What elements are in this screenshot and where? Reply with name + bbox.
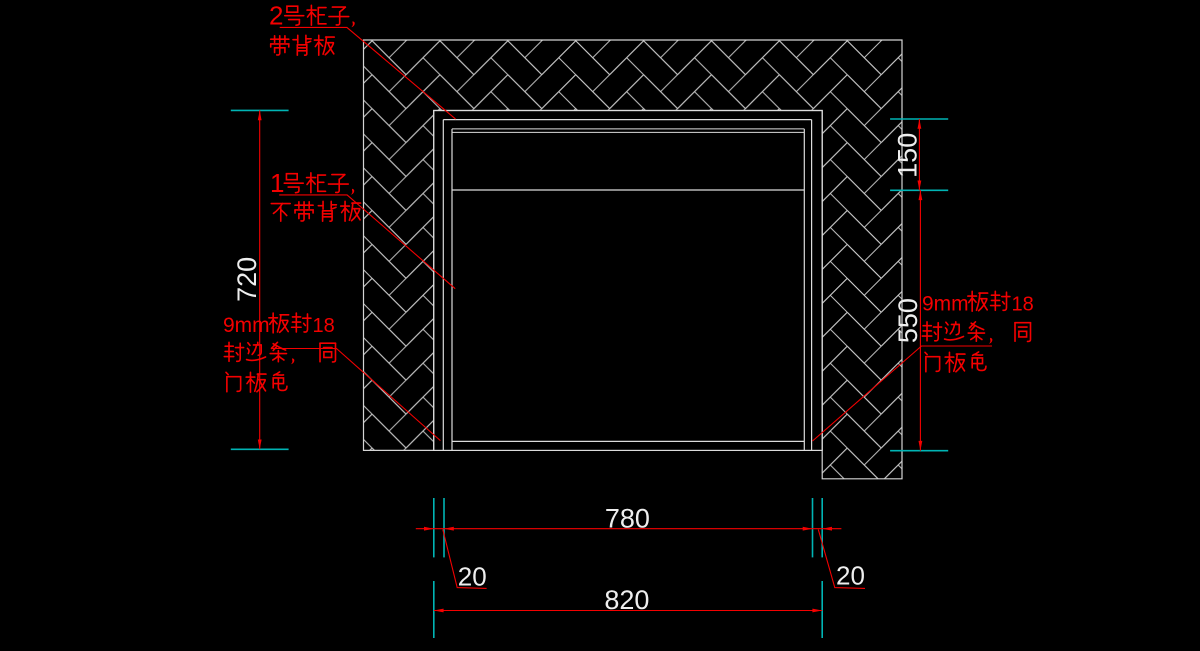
- svg-text:720: 720: [232, 257, 262, 302]
- svg-text:550: 550: [893, 298, 923, 343]
- svg-text:780: 780: [605, 503, 650, 533]
- svg-text:20: 20: [836, 560, 865, 590]
- svg-text:9mm: 9mm: [922, 293, 969, 316]
- svg-text:1: 1: [270, 168, 284, 198]
- svg-text:820: 820: [604, 585, 649, 615]
- svg-text:150: 150: [893, 133, 923, 178]
- svg-text:2: 2: [269, 1, 283, 31]
- svg-text:18: 18: [1012, 294, 1034, 316]
- svg-text:9mm: 9mm: [223, 314, 270, 337]
- svg-text:20: 20: [458, 561, 487, 591]
- svg-text:18: 18: [313, 315, 335, 337]
